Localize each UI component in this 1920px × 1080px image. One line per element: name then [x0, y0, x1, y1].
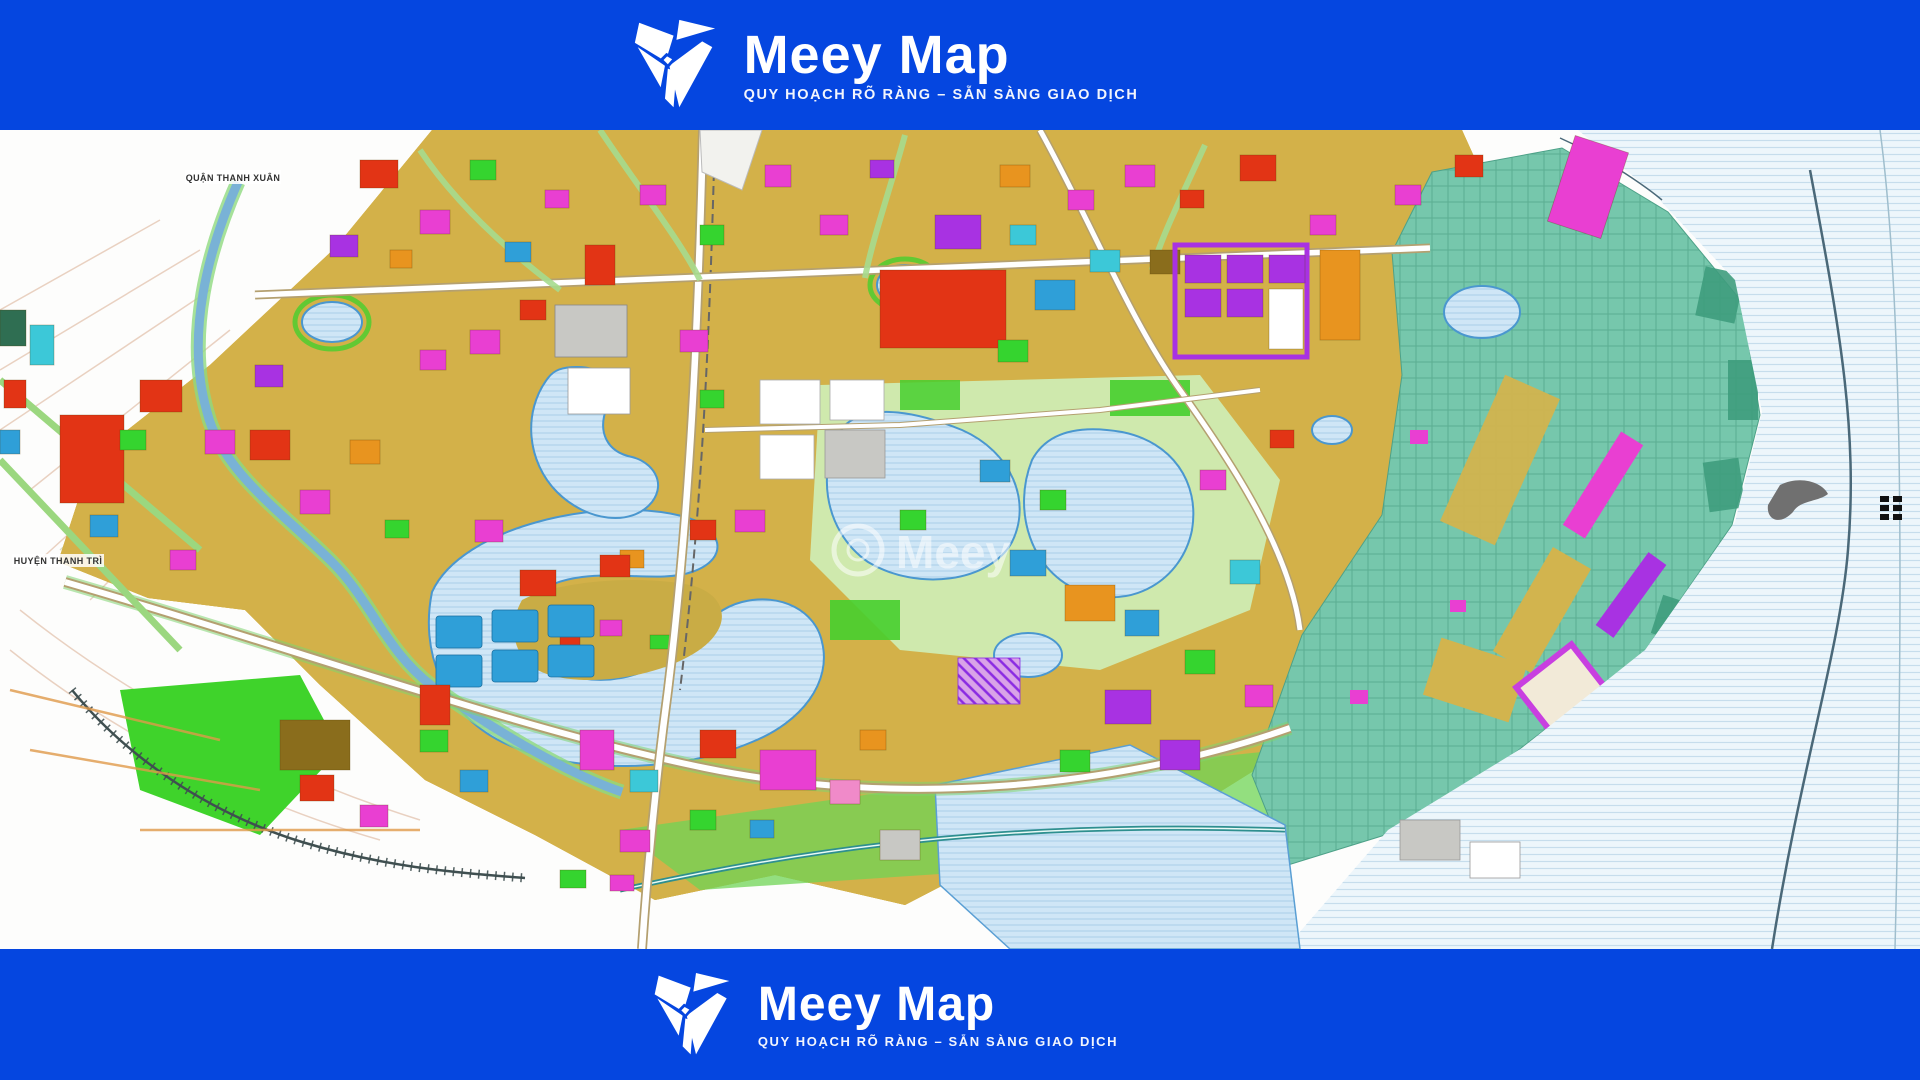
zoning-map-image: QUẬN THANH XUÂN HUYỆN THANH TRÌ Meey	[0, 130, 1920, 949]
brand-lockup-bottom: Meey Map QUY HOẠCH RÕ RÀNG – SẴN SÀNG GI…	[652, 971, 1118, 1059]
meey-map-logo-icon	[632, 18, 718, 112]
brand-lockup: Meey Map QUY HOẠCH RÕ RÀNG – SẴN SÀNG GI…	[632, 18, 1139, 112]
brand-name-bottom: Meey Map	[758, 980, 1118, 1030]
bottom-banner: Meey Map QUY HOẠCH RÕ RÀNG – SẴN SÀNG GI…	[0, 949, 1920, 1080]
brand-tagline-bottom: QUY HOẠCH RÕ RÀNG – SẴN SÀNG GIAO DỊCH	[758, 1034, 1118, 1049]
brand-name: Meey Map	[744, 27, 1139, 84]
top-banner: Meey Map QUY HOẠCH RÕ RÀNG – SẴN SÀNG GI…	[0, 0, 1920, 130]
brand-tagline: QUY HOẠCH RÕ RÀNG – SẴN SÀNG GIAO DỊCH	[744, 87, 1139, 103]
watermark-text: Meey	[896, 526, 1011, 578]
district-label-thanh-xuan: QUẬN THANH XUÂN	[186, 172, 281, 183]
district-label-thanh-tri: HUYỆN THANH TRÌ	[14, 555, 103, 566]
meey-map-logo-icon-bottom	[652, 971, 732, 1059]
